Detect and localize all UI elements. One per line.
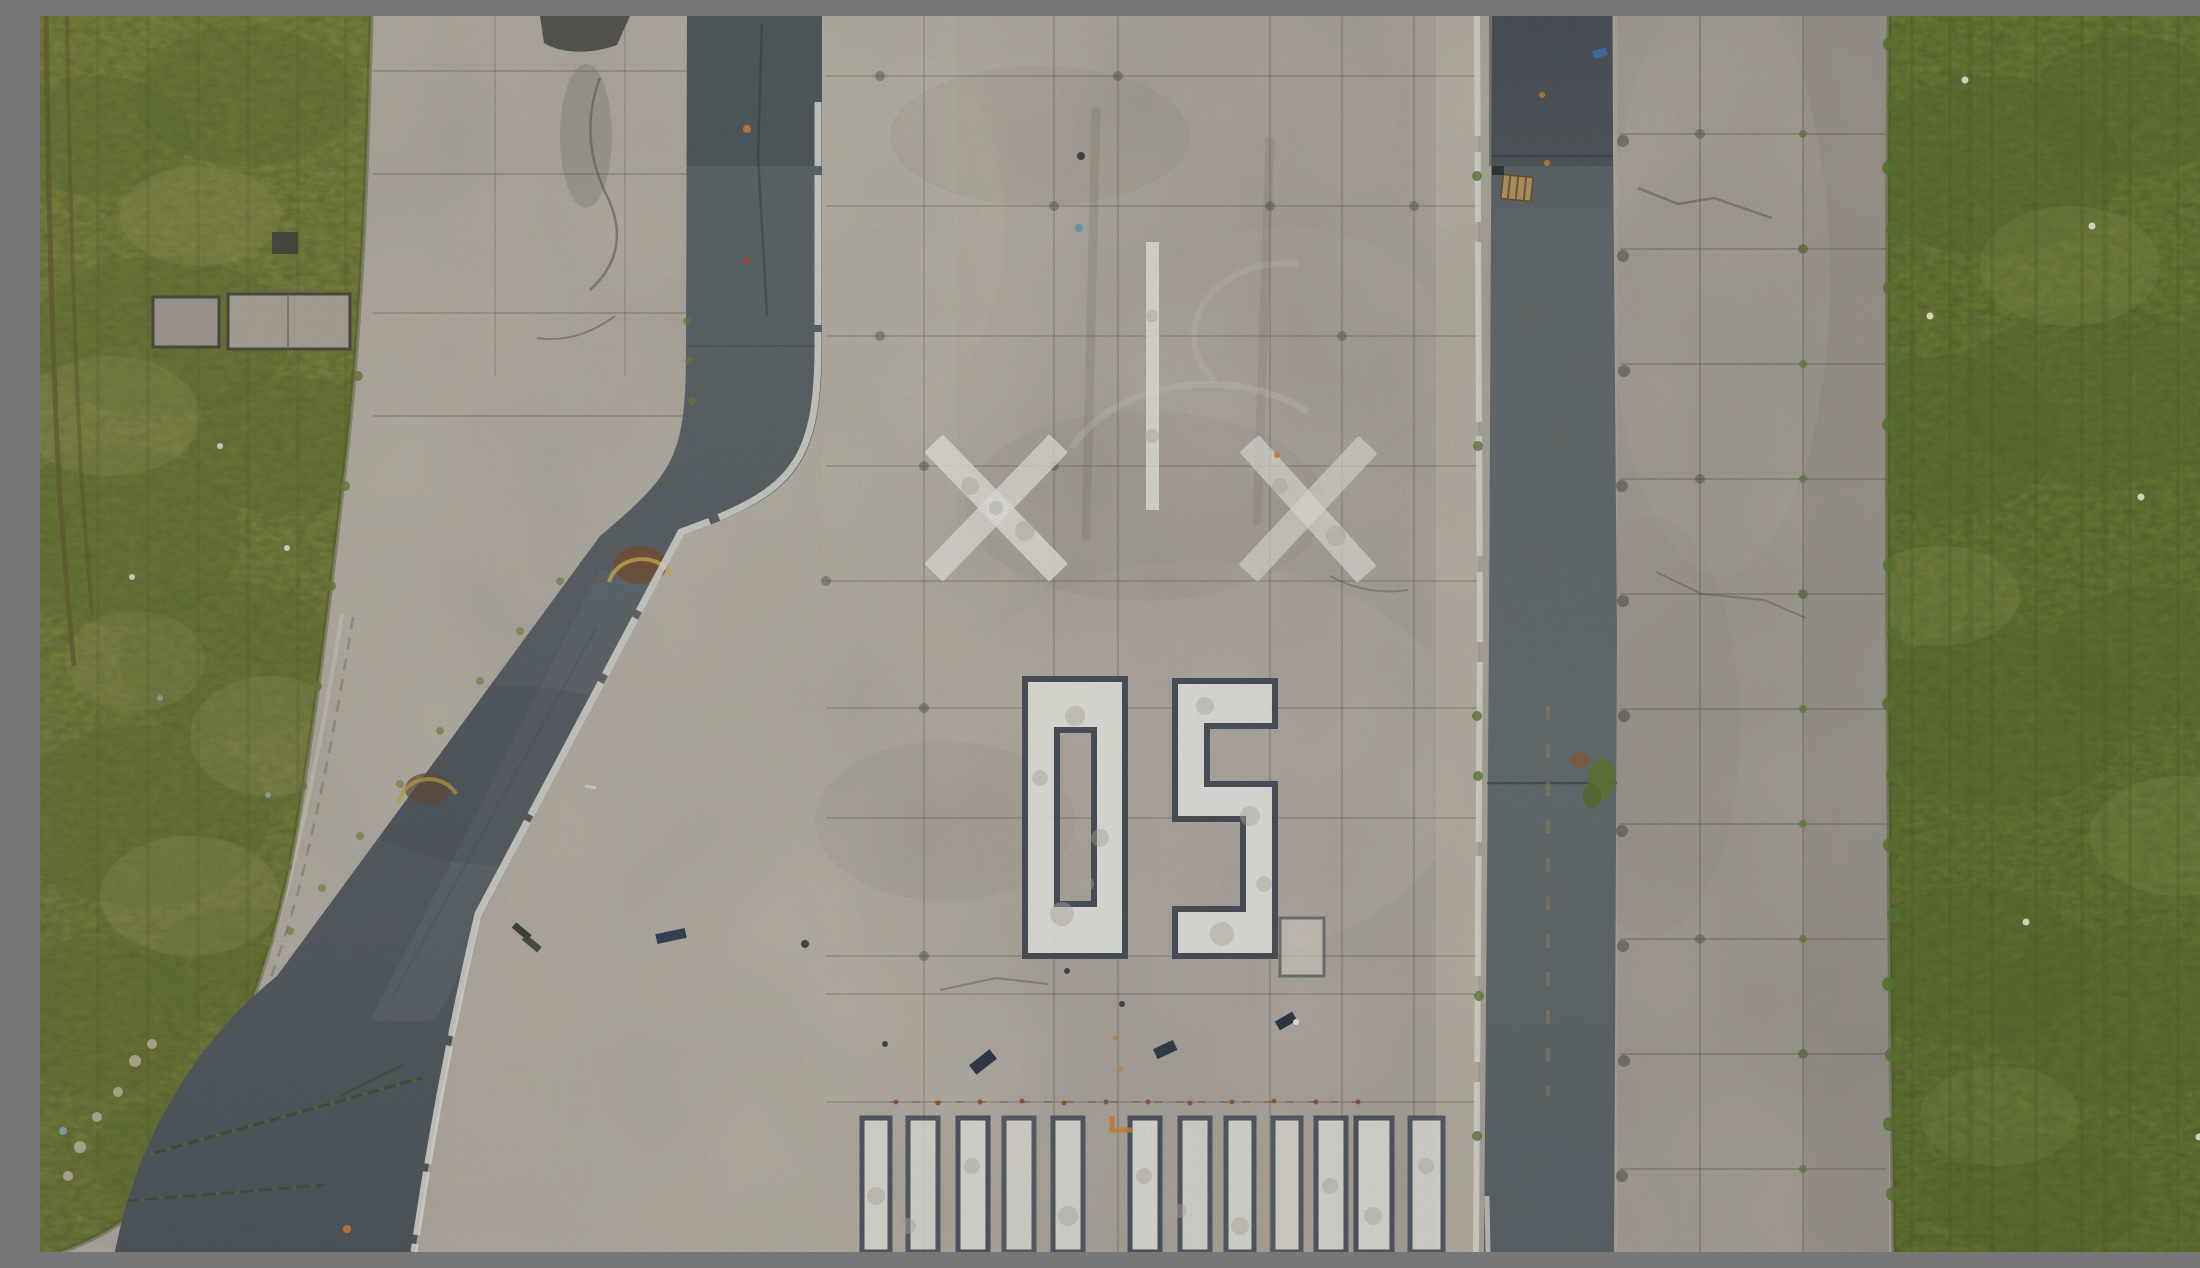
film-grain-layer: [40, 16, 2200, 1252]
screenshot-root: Aerial top-down drone photo of an abando…: [40, 16, 2200, 1252]
aerial-photo: [40, 16, 2200, 1252]
grain-light: [40, 16, 2200, 1252]
